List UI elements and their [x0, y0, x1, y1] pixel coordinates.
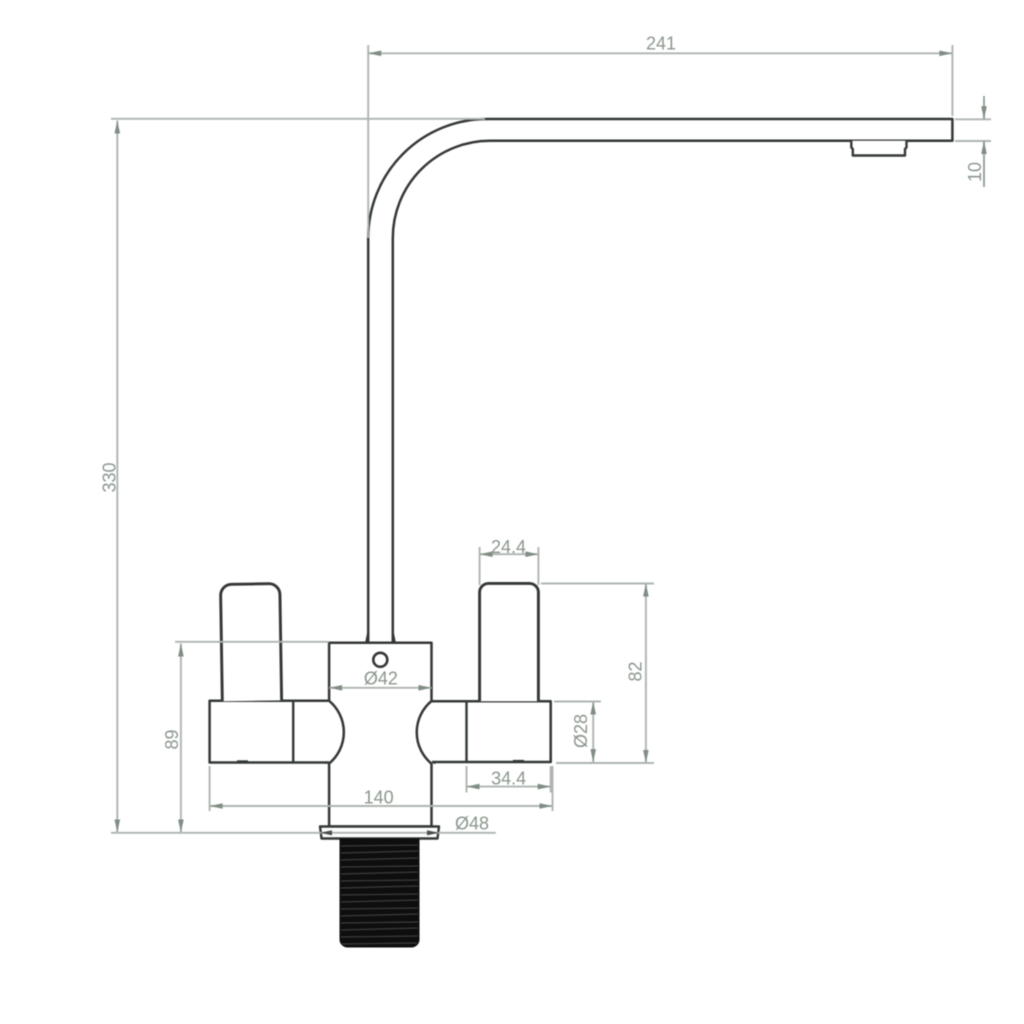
svg-text:Ø28: Ø28: [571, 714, 591, 748]
svg-text:34.4: 34.4: [491, 769, 526, 789]
svg-text:330: 330: [100, 462, 120, 492]
svg-text:140: 140: [364, 788, 394, 808]
svg-text:82: 82: [626, 661, 646, 681]
svg-text:Ø42: Ø42: [364, 669, 398, 689]
svg-text:10: 10: [965, 162, 985, 182]
svg-text:Ø48: Ø48: [455, 814, 489, 834]
svg-text:241: 241: [646, 34, 676, 54]
svg-text:24.4: 24.4: [491, 537, 526, 557]
svg-text:89: 89: [162, 729, 182, 749]
